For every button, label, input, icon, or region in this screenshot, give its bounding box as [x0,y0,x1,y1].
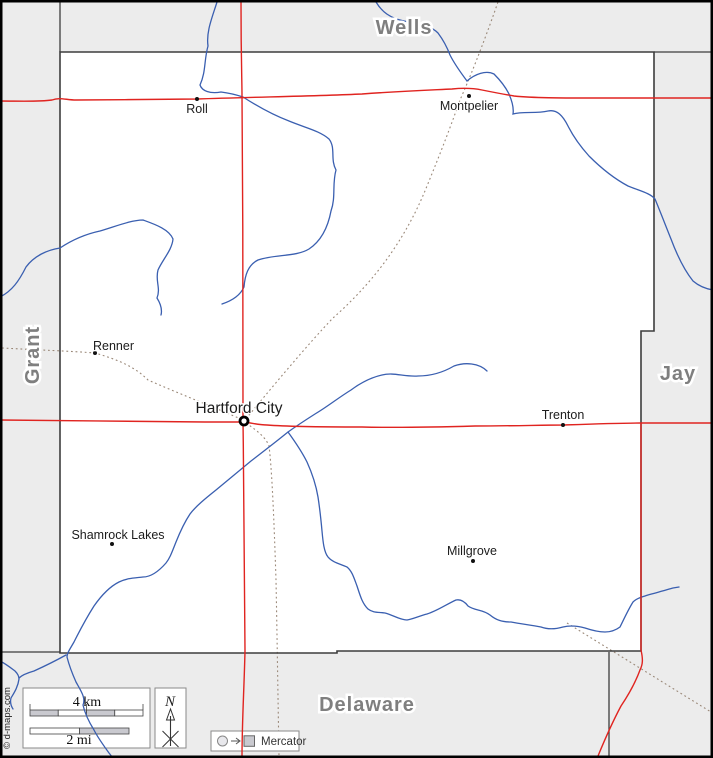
city-label-2: Montpelier [440,99,498,113]
scale-bar-km-segment [87,710,115,716]
city-label-5: Trenton [542,408,585,422]
neighbor-county-label-2: Grant [22,326,44,384]
background-layer [0,0,713,758]
city-label-7: Millgrove [447,544,497,558]
projection-plane-icon [244,736,255,747]
north-letter: N [164,694,176,710]
city-label-6: Shamrock Lakes [71,528,164,542]
city-label-3: Renner [93,339,134,353]
city-label-1: Roll [186,102,208,116]
scale-bar-km-segment [58,710,86,716]
city-marker [471,559,475,563]
city-marker [467,94,471,98]
neighbor-county-label-4: Delaware [319,694,415,716]
blackford-county-area [60,52,654,653]
neighbor-county-label-1: Wells [376,17,433,39]
scale-bar-km-segment [30,710,58,716]
projection-sphere-icon [218,736,228,746]
scale-mi-label: 2 mi [66,733,91,748]
city-label-4: Hartford City [196,400,283,417]
credit-layer: © d-maps.com [2,687,13,749]
map-stage: 4 km2 miNMercator RollMontpelierRennerHa… [0,0,713,758]
neighbor-county-label-3: Jay [660,363,696,385]
county-seat-marker [240,417,248,425]
city-marker [110,542,114,546]
scale-km-label: 4 km [73,695,102,710]
city-marker [195,97,199,101]
blackford-county-map: 4 km2 miNMercator RollMontpelierRennerHa… [0,0,713,758]
credit-label: © d-maps.com [2,687,13,749]
projection-name-label: Mercator [261,736,307,748]
scale-bar-km-segment [115,710,143,716]
city-marker [561,423,565,427]
